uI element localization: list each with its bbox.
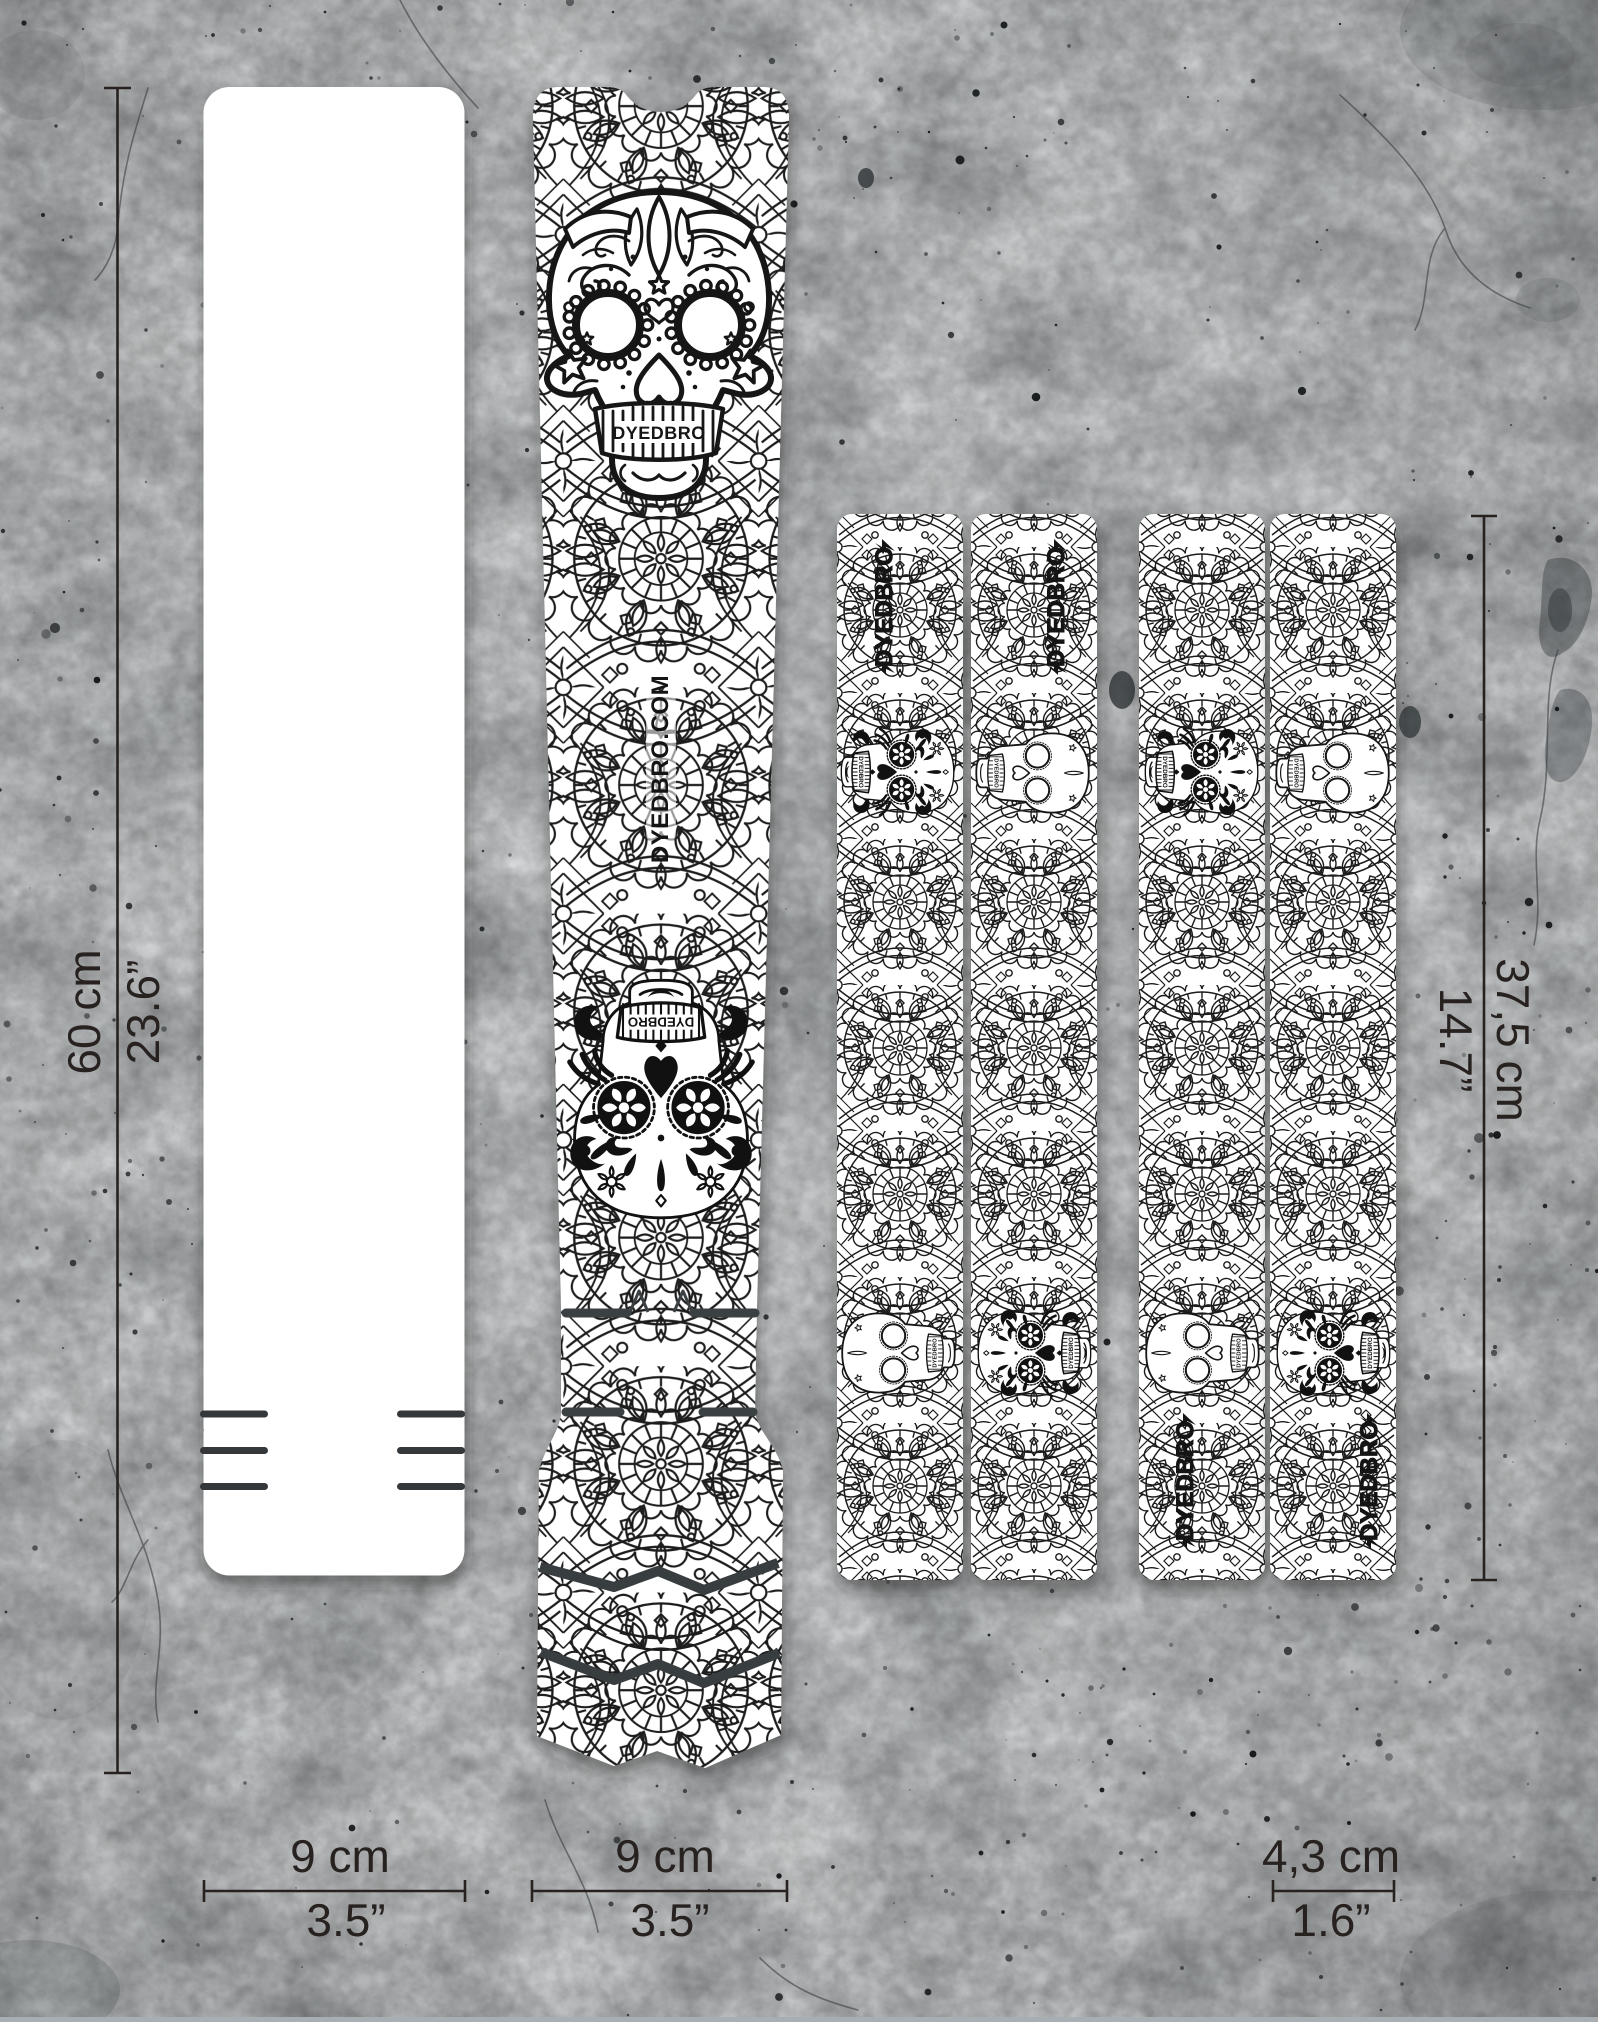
svg-text:37,5 cm: 37,5 cm xyxy=(1487,958,1539,1122)
svg-text:9 cm: 9 cm xyxy=(615,1830,715,1882)
svg-text:4,3 cm: 4,3 cm xyxy=(1262,1830,1400,1882)
svg-text:60 cm: 60 cm xyxy=(58,949,110,1074)
svg-text:3.5”: 3.5” xyxy=(306,1894,385,1946)
svg-text:DYEDBRO.COM: DYEDBRO.COM xyxy=(647,675,674,863)
svg-text:1.6”: 1.6” xyxy=(1291,1894,1370,1946)
svg-text:14.7”: 14.7” xyxy=(1430,988,1482,1093)
svg-text:23.6”: 23.6” xyxy=(117,960,169,1065)
svg-text:9 cm: 9 cm xyxy=(290,1830,390,1882)
svg-text:3.5”: 3.5” xyxy=(630,1894,709,1946)
